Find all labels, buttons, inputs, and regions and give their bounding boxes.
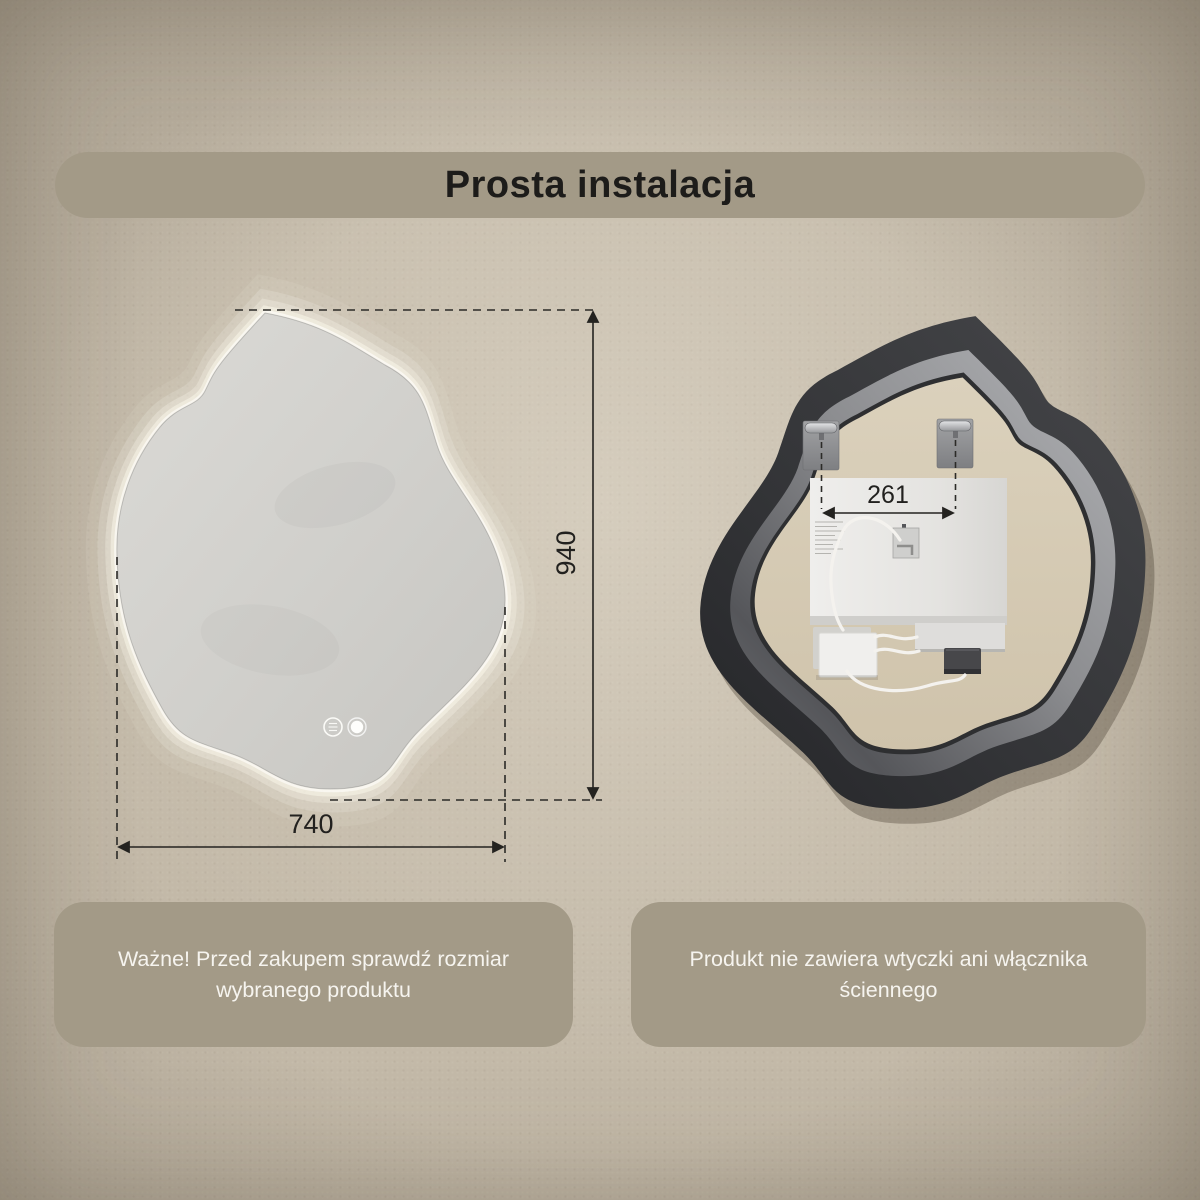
page-title: Prosta instalacja — [445, 164, 756, 207]
hook-pin-right — [939, 421, 971, 431]
panel-lower-step — [915, 623, 1005, 651]
info-text-line: ściennego — [839, 975, 937, 1006]
info-text-line: Produkt nie zawiera wtyczki ani włącznik… — [690, 944, 1088, 975]
hook-pin-left — [805, 423, 837, 433]
bracket-distance-label: 261 — [867, 481, 909, 509]
mirror-back-view-diagram: 261 — [695, 305, 1155, 825]
info-text-line: wybranego produktu — [216, 975, 411, 1006]
panel-corner-bracket — [893, 524, 919, 558]
title-banner: Prosta instalacja — [55, 152, 1145, 218]
mirror-front-view-diagram: 940 740 — [85, 295, 625, 885]
led-driver-box — [813, 627, 878, 680]
height-dimension: 940 — [551, 312, 593, 798]
width-dimension: 740 — [119, 809, 503, 847]
width-dimension-label: 740 — [288, 809, 333, 839]
info-text-line: Ważne! Przed zakupem sprawdź rozmiar — [118, 944, 509, 975]
product-infographic: { "title": "Prosta instalacja", "front_v… — [0, 0, 1200, 1200]
power-connector-box — [944, 648, 981, 674]
info-box-no-plug: Produkt nie zawiera wtyczki ani włącznik… — [631, 902, 1146, 1047]
height-dimension-label: 940 — [551, 530, 581, 575]
info-box-size-warning: Ważne! Przed zakupem sprawdź rozmiar wyb… — [54, 902, 573, 1047]
